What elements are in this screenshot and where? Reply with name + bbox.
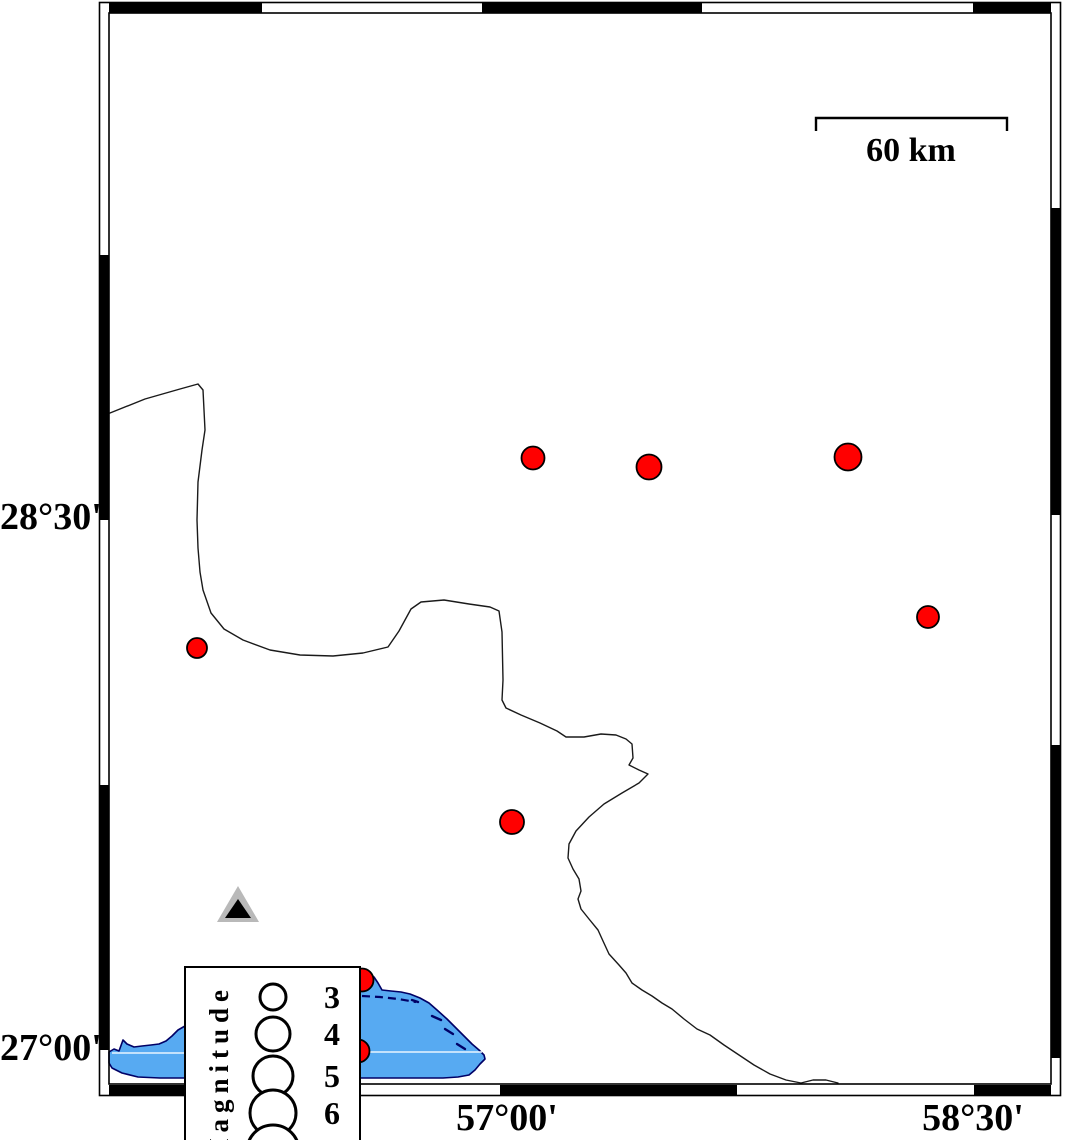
seismic-station-layer	[217, 886, 259, 922]
epicenter-marker	[500, 810, 524, 834]
epicenter-marker	[187, 638, 207, 658]
scalebar-label: 60 km	[826, 134, 996, 168]
water-body-east	[350, 977, 485, 1078]
lat-label-27-00: 27°00'	[0, 1029, 90, 1067]
legend-entries: 3456	[247, 979, 340, 1140]
legend-magnitude-value: 6	[324, 1095, 340, 1131]
frame-inner-line	[109, 13, 1051, 1084]
lon-label-57-00: 57°00'	[417, 1099, 597, 1137]
legend-magnitude-value: 5	[324, 1058, 340, 1094]
legend-graphics: Magnitude 3456	[186, 968, 359, 1140]
magnitude-legend: Magnitude 3456	[184, 966, 361, 1140]
epicenter-marker	[637, 455, 662, 480]
epicenter-marker	[522, 447, 545, 470]
legend-title: Magnitude	[204, 984, 234, 1140]
legend-magnitude-value: 3	[324, 979, 340, 1015]
epicenter-marker	[835, 444, 862, 471]
legend-magnitude-circle	[260, 984, 286, 1010]
scalebar-bracket	[816, 118, 1007, 131]
legend-magnitude-circle	[256, 1017, 290, 1051]
legend-magnitude-value: 4	[324, 1016, 340, 1052]
lon-label-58-30: 58°30'	[883, 1099, 1063, 1137]
lat-label-28-30: 28°30'	[0, 498, 90, 536]
map-graphics	[0, 0, 1066, 1140]
epicenter-marker	[917, 606, 939, 628]
map-canvas: 28°30' 27°00' 57°00' 58°30' 60 km Magnit…	[0, 0, 1066, 1140]
